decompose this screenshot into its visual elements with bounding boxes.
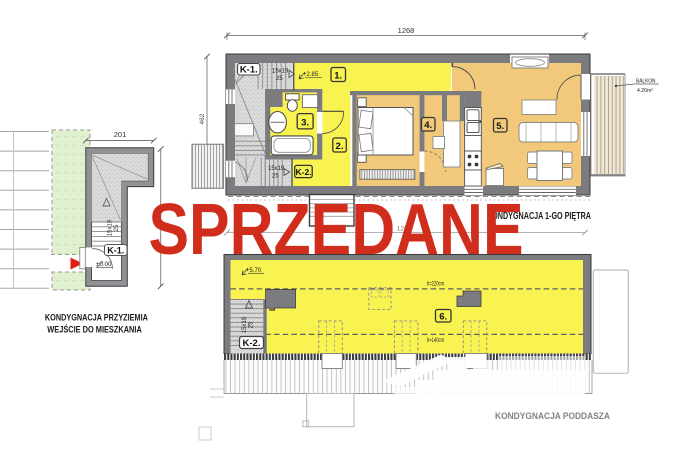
svg-text:15x19: 15x19 — [268, 166, 285, 172]
svg-text:2.: 2. — [336, 141, 344, 152]
svg-text:K-1.: K-1. — [107, 245, 124, 255]
svg-text:K-2.: K-2. — [243, 338, 261, 349]
svg-text:25: 25 — [114, 224, 120, 231]
svg-text:KONDYGNACJA PRZYZIEMIA: KONDYGNACJA PRZYZIEMIA — [45, 313, 148, 323]
svg-text:SPRZEDANE: SPRZEDANE — [149, 190, 524, 270]
svg-text:h=140cm: h=140cm — [427, 338, 444, 344]
svg-text:3.: 3. — [301, 118, 309, 129]
svg-text:25: 25 — [249, 321, 255, 328]
svg-text:WEJŚCIE DO MIESZKANIA: WEJŚCIE DO MIESZKANIA — [47, 324, 142, 335]
svg-text:K-1.: K-1. — [240, 65, 258, 76]
svg-text:462: 462 — [199, 113, 206, 124]
svg-text:25: 25 — [272, 174, 279, 180]
svg-text:15x19: 15x19 — [242, 316, 248, 333]
svg-text:15x19: 15x19 — [272, 69, 289, 75]
svg-text:15x19: 15x19 — [108, 219, 114, 236]
svg-text:KONDYGNACJA PODDASZA: KONDYGNACJA PODDASZA — [495, 410, 610, 421]
svg-text:4.20m²: 4.20m² — [637, 88, 653, 94]
svg-text:h=220cm: h=220cm — [427, 282, 444, 288]
svg-text:5.: 5. — [496, 121, 504, 132]
svg-text:1268: 1268 — [398, 26, 415, 35]
svg-text:6.: 6. — [439, 312, 447, 323]
svg-text:4.: 4. — [424, 120, 432, 131]
svg-text:201: 201 — [114, 130, 127, 139]
svg-text:1.: 1. — [334, 71, 342, 82]
svg-text:K-2.: K-2. — [295, 167, 311, 177]
svg-text:25: 25 — [276, 76, 283, 82]
svg-text:BALKON: BALKON — [636, 79, 656, 85]
